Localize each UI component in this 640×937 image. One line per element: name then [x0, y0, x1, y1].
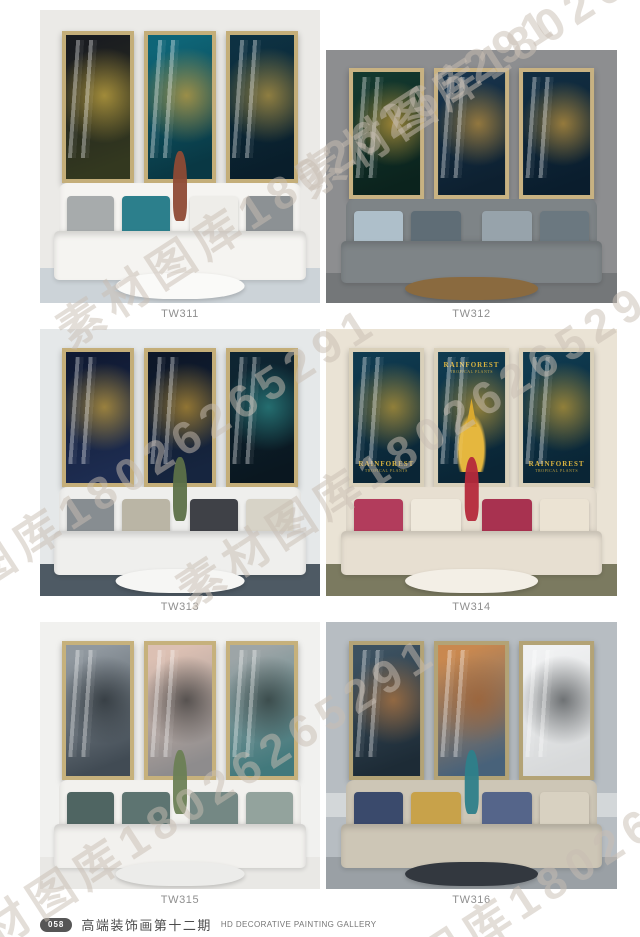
product-code: TW312 — [326, 308, 617, 321]
product-photo — [326, 622, 617, 889]
product-card-tw314: RAINFOREST TROPICAL PLANTS RAINFOREST TR… — [326, 329, 617, 614]
artwork-text: RAINFOREST TROPICAL PLANTS — [523, 460, 590, 473]
artwork-title: RAINFOREST — [353, 460, 420, 468]
artwork-text: RAINFOREST TROPICAL PLANTS — [353, 460, 420, 473]
page-number-badge: 058 — [40, 918, 72, 932]
artwork-text: RAINFOREST TROPICAL PLANTS — [438, 361, 505, 374]
product-card-tw316: TW316 — [326, 622, 617, 907]
product-card-tw315: TW315 — [40, 622, 320, 907]
product-card-tw313: TW313 — [40, 329, 320, 614]
art-frame — [519, 68, 594, 200]
artwork-panel-rainforest: RAINFOREST TROPICAL PLANTS — [353, 352, 420, 483]
product-code: TW313 — [40, 601, 320, 614]
coffee-table — [405, 862, 539, 886]
product-photo — [40, 622, 320, 889]
art-frame — [62, 641, 134, 780]
artwork-panel — [66, 35, 130, 179]
product-code: TW314 — [326, 601, 617, 614]
artwork-panel — [523, 645, 590, 776]
decor-teal-vases — [464, 750, 479, 814]
artwork-panel — [66, 352, 130, 483]
artwork-panel — [438, 72, 505, 196]
triptych-frames — [341, 68, 603, 200]
footer-title-chinese: 高端装饰画第十二期 — [81, 915, 212, 934]
artwork-panel — [523, 72, 590, 196]
grid-row-2: TW313 RAINFOREST TROPICAL PLANTS — [40, 329, 640, 614]
art-frame — [349, 641, 424, 780]
artwork-title: RAINFOREST — [523, 460, 590, 468]
art-frame: RAINFOREST TROPICAL PLANTS — [519, 348, 594, 487]
artwork-panel — [353, 645, 420, 776]
product-photo — [40, 329, 320, 596]
product-code: TW316 — [326, 894, 617, 907]
art-frame — [349, 68, 424, 200]
product-code: TW315 — [40, 894, 320, 907]
product-grid: TW311 — [0, 10, 640, 907]
art-frame — [519, 641, 594, 780]
artwork-subtitle: TROPICAL PLANTS — [353, 468, 420, 473]
artwork-panel — [353, 72, 420, 196]
product-card-tw312: TW312 — [326, 10, 617, 321]
art-frame: RAINFOREST TROPICAL PLANTS — [349, 348, 424, 487]
grid-row-3: TW315 — [40, 622, 640, 907]
artwork-title: RAINFOREST — [438, 361, 505, 369]
artwork-panel — [230, 352, 294, 483]
footer-title-english: HD DECORATIVE PAINTING GALLERY — [221, 920, 377, 929]
product-card-tw311: TW311 — [40, 10, 320, 321]
artwork-panel — [230, 645, 294, 776]
decor-plant — [173, 457, 187, 521]
artwork-panel-rainforest: RAINFOREST TROPICAL PLANTS — [523, 352, 590, 483]
artwork-subtitle: TROPICAL PLANTS — [438, 369, 505, 374]
artwork-panel — [230, 35, 294, 179]
product-photo — [326, 50, 617, 303]
decor-berry-branch — [464, 457, 479, 521]
product-photo — [40, 10, 320, 303]
art-frame — [226, 31, 298, 183]
art-frame — [62, 31, 134, 183]
coffee-table — [405, 277, 539, 300]
artwork-subtitle: TROPICAL PLANTS — [523, 468, 590, 473]
sofa — [341, 199, 603, 282]
art-frame — [226, 641, 298, 780]
product-photo: RAINFOREST TROPICAL PLANTS RAINFOREST TR… — [326, 329, 617, 596]
decor-vase — [173, 151, 187, 221]
art-frame — [62, 348, 134, 487]
art-frame — [434, 68, 509, 200]
decor-eucalyptus — [173, 750, 187, 814]
product-code: TW311 — [40, 308, 320, 321]
side-table — [116, 862, 245, 886]
coffee-table — [405, 569, 539, 593]
catalog-page: TW311 — [0, 0, 640, 937]
art-frame — [226, 348, 298, 487]
coffee-table — [116, 569, 245, 593]
artwork-panel — [66, 645, 130, 776]
grid-row-1: TW311 — [40, 10, 640, 321]
page-footer: 058 高端装饰画第十二期 HD DECORATIVE PAINTING GAL… — [0, 915, 640, 934]
coffee-table — [116, 273, 245, 299]
